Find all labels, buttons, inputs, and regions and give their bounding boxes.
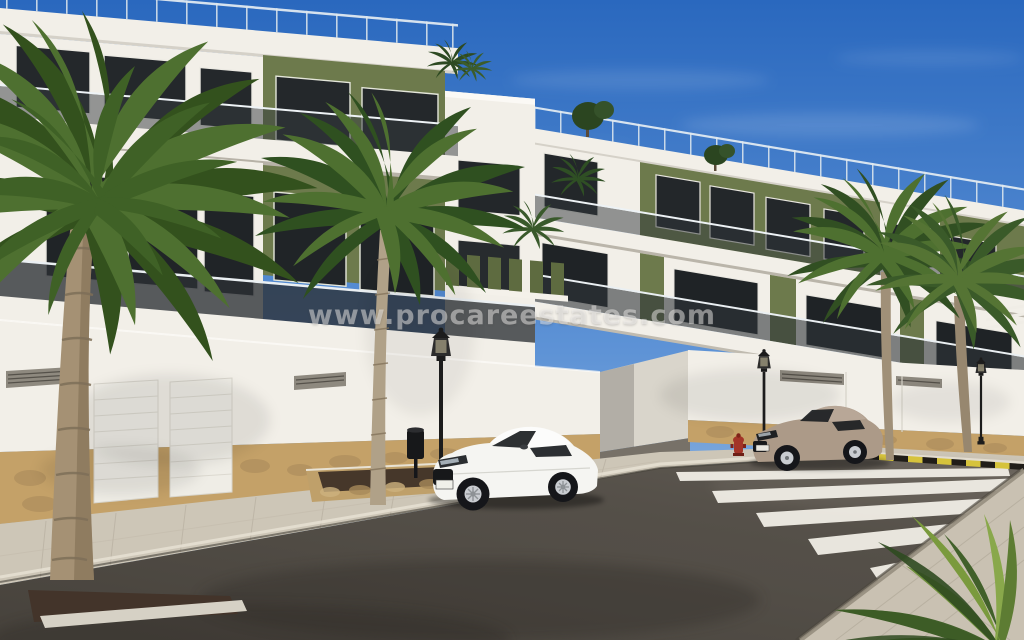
license-plate — [436, 480, 453, 489]
wheel — [774, 445, 800, 471]
scene-canvas — [0, 0, 1024, 640]
property-render: www.procareestates.com — [0, 0, 1024, 640]
wheel — [457, 478, 490, 511]
wheel — [548, 472, 578, 502]
wheel — [843, 440, 867, 464]
